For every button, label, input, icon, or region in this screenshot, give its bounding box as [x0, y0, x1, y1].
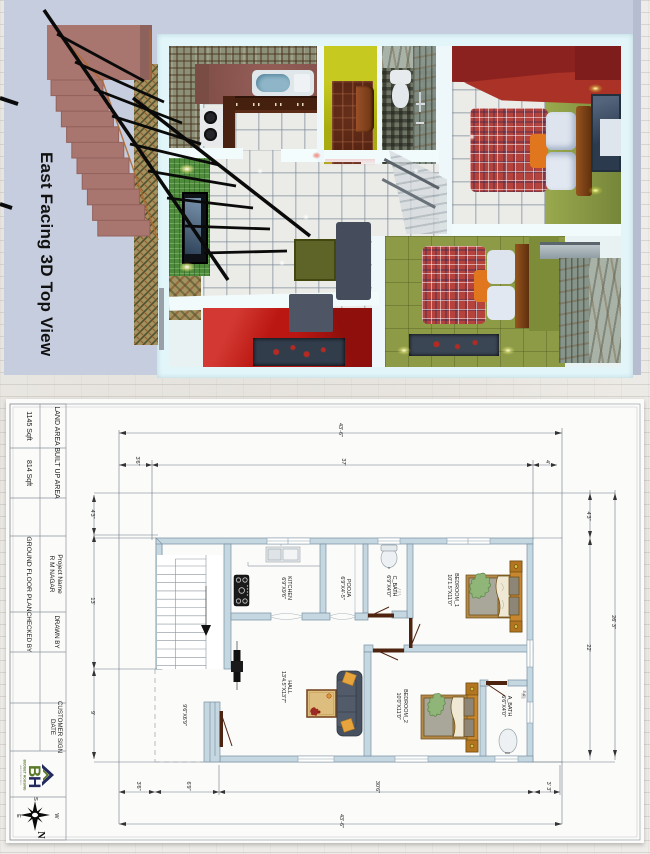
svg-text:4'3": 4'3"	[585, 511, 591, 520]
svg-text:GROUND FLOOR PLAN: GROUND FLOOR PLAN	[25, 536, 32, 611]
svg-text:6'6"X4'0": 6'6"X4'0"	[500, 695, 506, 717]
svg-text:S: S	[32, 797, 38, 801]
svg-text:37': 37'	[340, 458, 346, 465]
svg-text:3' 3": 3' 3"	[545, 782, 551, 793]
svg-text:13'4.5"X13'7": 13'4.5"X13'7"	[280, 671, 286, 703]
svg-text:43'-6": 43'-6"	[338, 814, 344, 828]
svg-text:814 Sqft: 814 Sqft	[25, 460, 32, 486]
svg-text:3'6": 3'6"	[134, 456, 140, 465]
svg-text:9': 9'	[89, 711, 95, 715]
svg-text:26' 3": 26' 3"	[610, 615, 616, 629]
svg-text:10'0"X11'0": 10'0"X11'0"	[395, 692, 401, 719]
svg-text:DATE: DATE	[49, 719, 56, 735]
svg-text:BUDGET HOUSING: BUDGET HOUSING	[23, 759, 27, 790]
svg-text:22': 22'	[585, 644, 591, 651]
svg-text:10'1.5"X11'0": 10'1.5"X11'0"	[446, 574, 452, 606]
svg-text:3'6": 3'6"	[135, 781, 141, 790]
svg-text:4': 4'	[544, 460, 550, 464]
svg-text:1145 Sqft: 1145 Sqft	[25, 411, 32, 441]
svg-text:H: H	[25, 776, 44, 788]
svg-text:CUSTOMER SIGN: CUSTOMER SIGN	[56, 701, 63, 753]
svg-text:AND PROMOTERS: AND PROMOTERS	[19, 765, 22, 785]
svg-text:Project Name: Project Name	[56, 554, 63, 594]
svg-text:6'9": 6'9"	[185, 781, 191, 790]
svg-text:LAND AREA: LAND AREA	[53, 406, 60, 446]
svg-text:BEDROOM_2: BEDROOM_2	[402, 689, 408, 723]
svg-text:30'6": 30'6"	[374, 781, 380, 793]
svg-text:R M NAGAR: R M NAGAR	[48, 556, 55, 593]
svg-text:N: N	[35, 831, 46, 839]
svg-text:4'3": 4'3"	[89, 509, 95, 518]
svg-text:6'9"X4'-5": 6'9"X4'-5"	[339, 576, 345, 599]
svg-text:CHECKED BY: CHECKED BY	[25, 612, 32, 652]
svg-text:6'9"X9'6": 6'9"X9'6"	[280, 577, 286, 599]
svg-text:W: W	[53, 813, 59, 819]
svg-text:9'6"X6'9": 9'6"X6'9"	[181, 704, 187, 726]
svg-text:BUILT UP AREA: BUILT UP AREA	[53, 447, 60, 499]
svg-text:BEDROOM_1: BEDROOM_1	[453, 573, 459, 607]
svg-text:DRAWN BY: DRAWN BY	[53, 615, 60, 648]
svg-text:E: E	[15, 814, 21, 818]
svg-text:3'-0": 3'-0"	[522, 691, 526, 699]
svg-text:13': 13'	[89, 597, 95, 604]
svg-text:6'9"X4'0": 6'9"X4'0"	[385, 575, 391, 597]
svg-text:43'-6": 43'-6"	[337, 423, 343, 437]
